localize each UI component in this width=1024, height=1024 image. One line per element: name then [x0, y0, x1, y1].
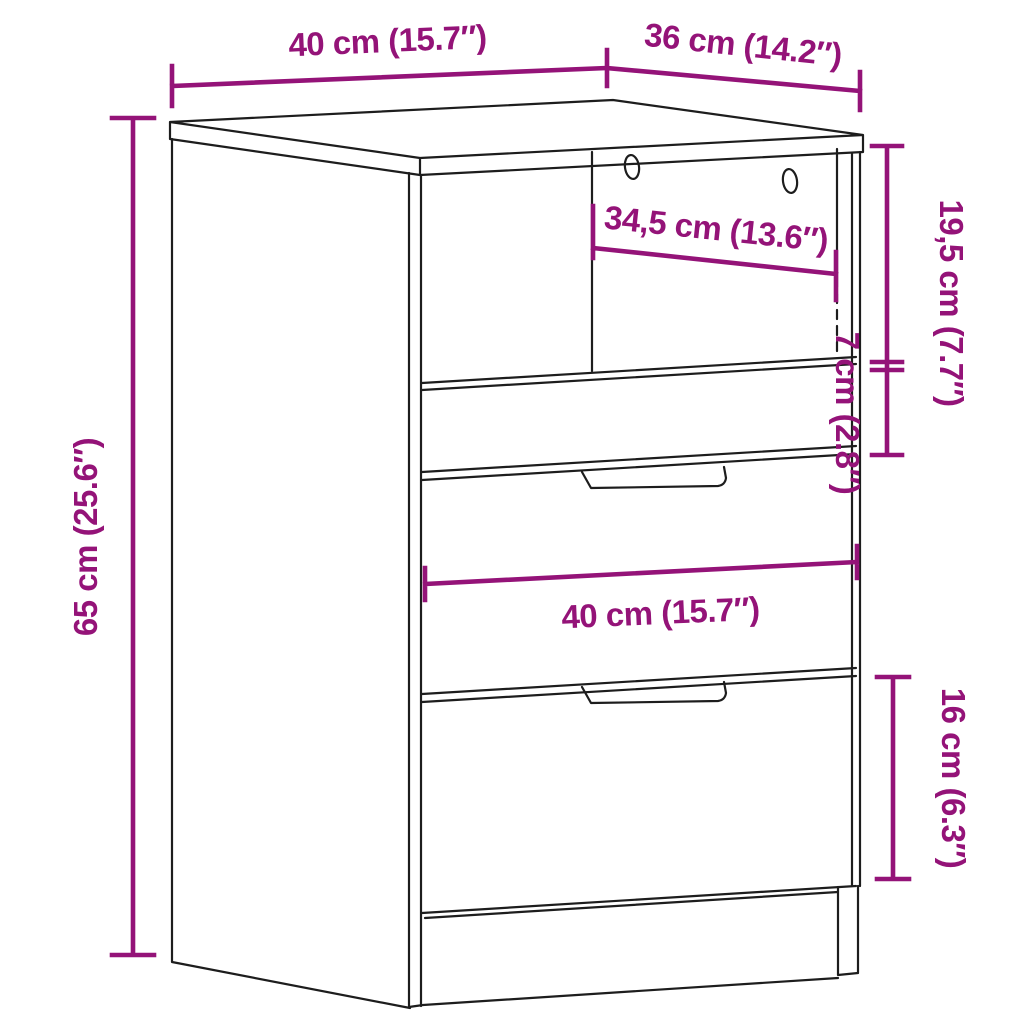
- drawer1-bottom-gap: [422, 446, 856, 480]
- label-overall-height: 65 cm (25.6″): [67, 438, 104, 636]
- cabinet-left-side-panel: [172, 139, 410, 1008]
- label-bottom-drawer-height: 16 cm (6.3″): [935, 688, 972, 868]
- label-upper-section-height: 19,5 cm (7.7″): [933, 200, 970, 407]
- label-small-drawer-height: 7 cm (2.8″): [829, 332, 866, 495]
- diagram-canvas: 40 cm (15.7″) 36 cm (14.2″) 65 cm (25.6″…: [0, 0, 1024, 1024]
- screw-hole: [781, 168, 798, 194]
- dim-line-overall-height: [112, 118, 154, 955]
- label-top-depth: 36 cm (14.2″): [643, 16, 844, 74]
- label-interior-width: 34,5 cm (13.6″): [602, 198, 829, 258]
- cabinet-front-left-edge: [409, 173, 421, 1007]
- dim-line-front-width: [425, 546, 857, 600]
- cabinet-top-panel: [170, 100, 863, 175]
- dim-line-bottom-drawer: [877, 677, 909, 879]
- product-dimension-diagram: 40 cm (15.7″) 36 cm (14.2″) 65 cm (25.6″…: [0, 0, 1024, 1024]
- dim-line-upper-section: [872, 146, 902, 455]
- label-front-width: 40 cm (15.7″): [561, 590, 761, 636]
- dimension-lines: [112, 50, 909, 955]
- drawer2-bottom-gap: [422, 668, 856, 702]
- compartment-floor-edge: [422, 357, 856, 390]
- label-top-width: 40 cm (15.7″): [288, 18, 488, 64]
- plinth-outline: [409, 886, 856, 1007]
- screw-hole: [623, 154, 640, 180]
